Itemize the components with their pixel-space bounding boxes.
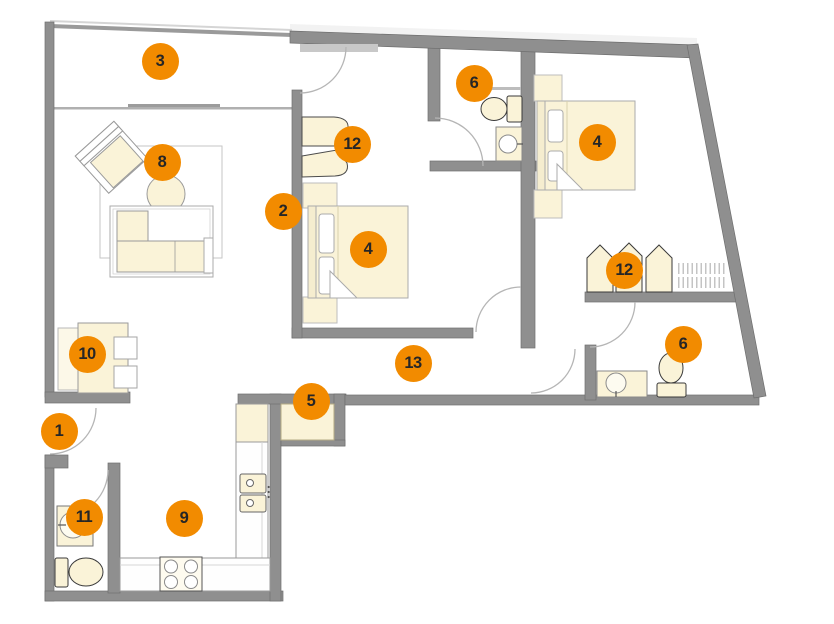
floor-marker-number: 2 (279, 202, 288, 221)
floorplan-stage: 1 2 3 4 4 5 6 6 8 9 10 11 12 12 13 (0, 0, 834, 624)
floor-marker-10-10[interactable]: 10 (69, 336, 106, 373)
floor-marker-number: 13 (404, 354, 421, 373)
floor-marker-number: 4 (364, 240, 373, 259)
floor-marker-number: 6 (470, 74, 479, 93)
floor-marker-1-0[interactable]: 1 (41, 413, 78, 450)
floor-marker-11-11[interactable]: 11 (66, 499, 103, 536)
floor-marker-4-4[interactable]: 4 (579, 124, 616, 161)
floor-marker-12-13[interactable]: 12 (606, 252, 643, 289)
floor-marker-number: 12 (615, 261, 632, 280)
floor-marker-3-2[interactable]: 3 (142, 43, 179, 80)
floor-marker-number: 5 (307, 392, 316, 411)
floor-marker-number: 6 (679, 335, 688, 354)
floor-marker-number: 12 (343, 135, 360, 154)
floor-marker-12-12[interactable]: 12 (334, 126, 371, 163)
markers-layer: 1 2 3 4 4 5 6 6 8 9 10 11 12 12 13 (0, 0, 834, 624)
floor-marker-4-3[interactable]: 4 (350, 231, 387, 268)
floor-marker-8-8[interactable]: 8 (144, 144, 181, 181)
floor-marker-number: 10 (78, 345, 95, 364)
floor-marker-number: 9 (180, 509, 189, 528)
floor-marker-number: 4 (593, 133, 602, 152)
floor-marker-6-7[interactable]: 6 (665, 326, 702, 363)
floor-marker-number: 1 (55, 422, 64, 441)
floor-marker-number: 3 (156, 52, 165, 71)
floor-marker-number: 8 (158, 153, 167, 172)
floor-marker-9-9[interactable]: 9 (166, 500, 203, 537)
floor-marker-2-1[interactable]: 2 (265, 193, 302, 230)
floor-marker-number: 11 (76, 508, 92, 527)
floor-marker-5-5[interactable]: 5 (293, 383, 330, 420)
floor-marker-13-14[interactable]: 13 (395, 345, 432, 382)
floor-marker-6-6[interactable]: 6 (456, 65, 493, 102)
